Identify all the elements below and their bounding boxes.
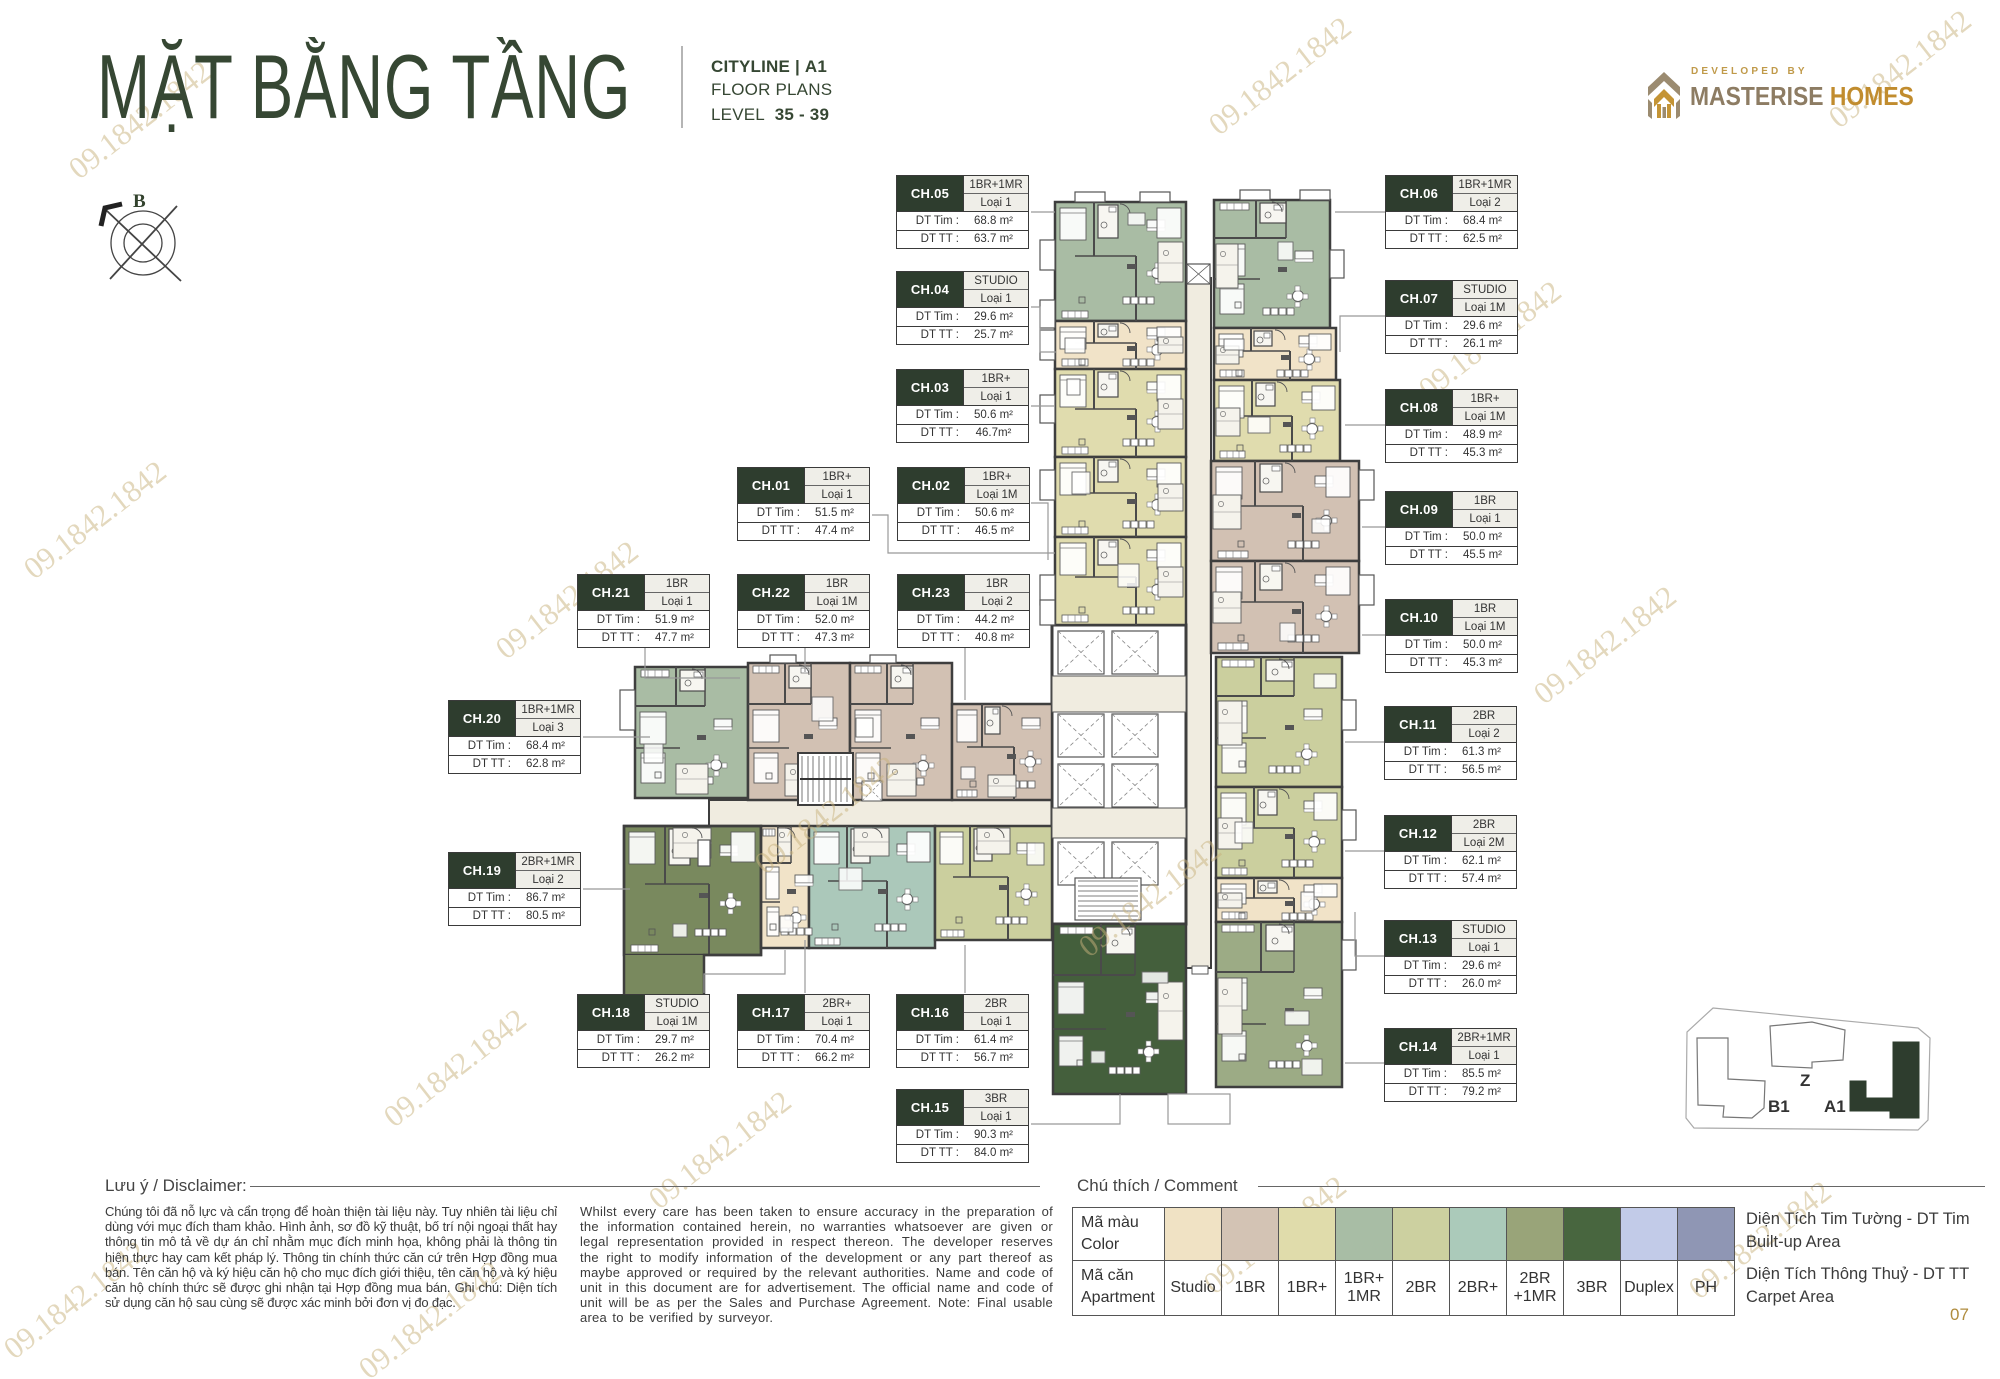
svg-text:A1: A1	[1824, 1097, 1846, 1116]
svg-text:B1: B1	[1768, 1097, 1790, 1116]
svg-text:B: B	[133, 191, 146, 212]
svg-text:Z: Z	[1800, 1071, 1810, 1090]
